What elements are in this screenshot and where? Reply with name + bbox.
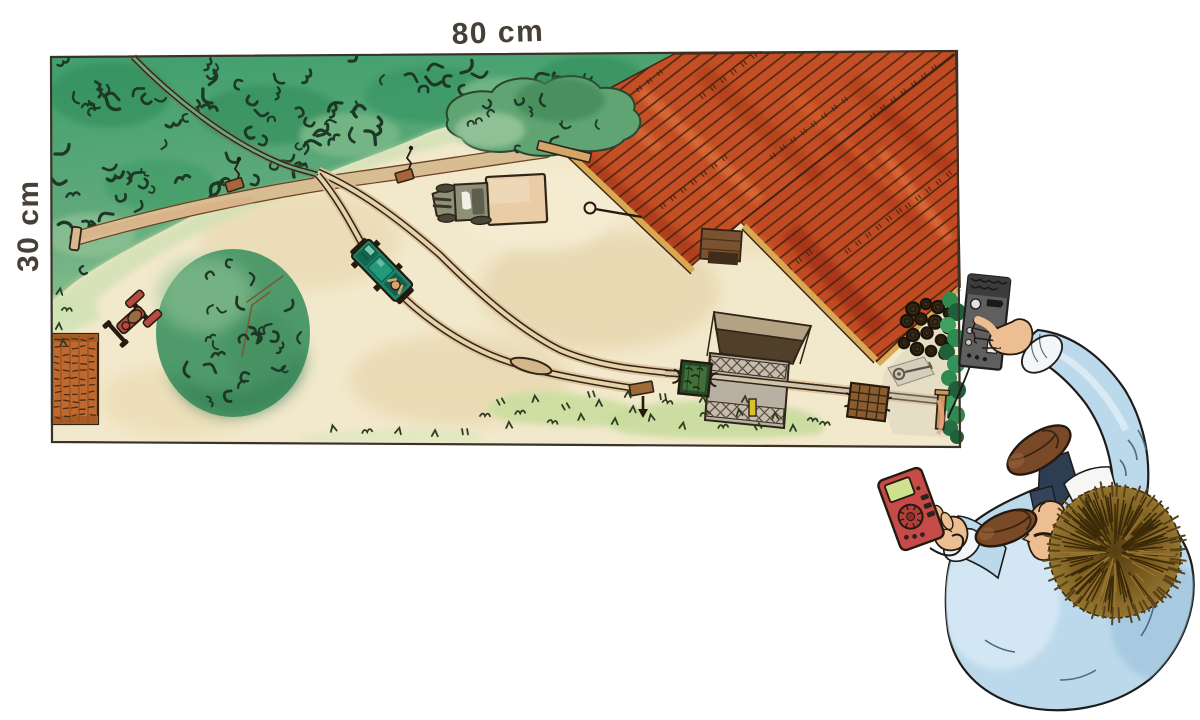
svg-text:30 cm: 30 cm — [12, 179, 45, 272]
svg-text:80 cm: 80 cm — [451, 15, 545, 51]
